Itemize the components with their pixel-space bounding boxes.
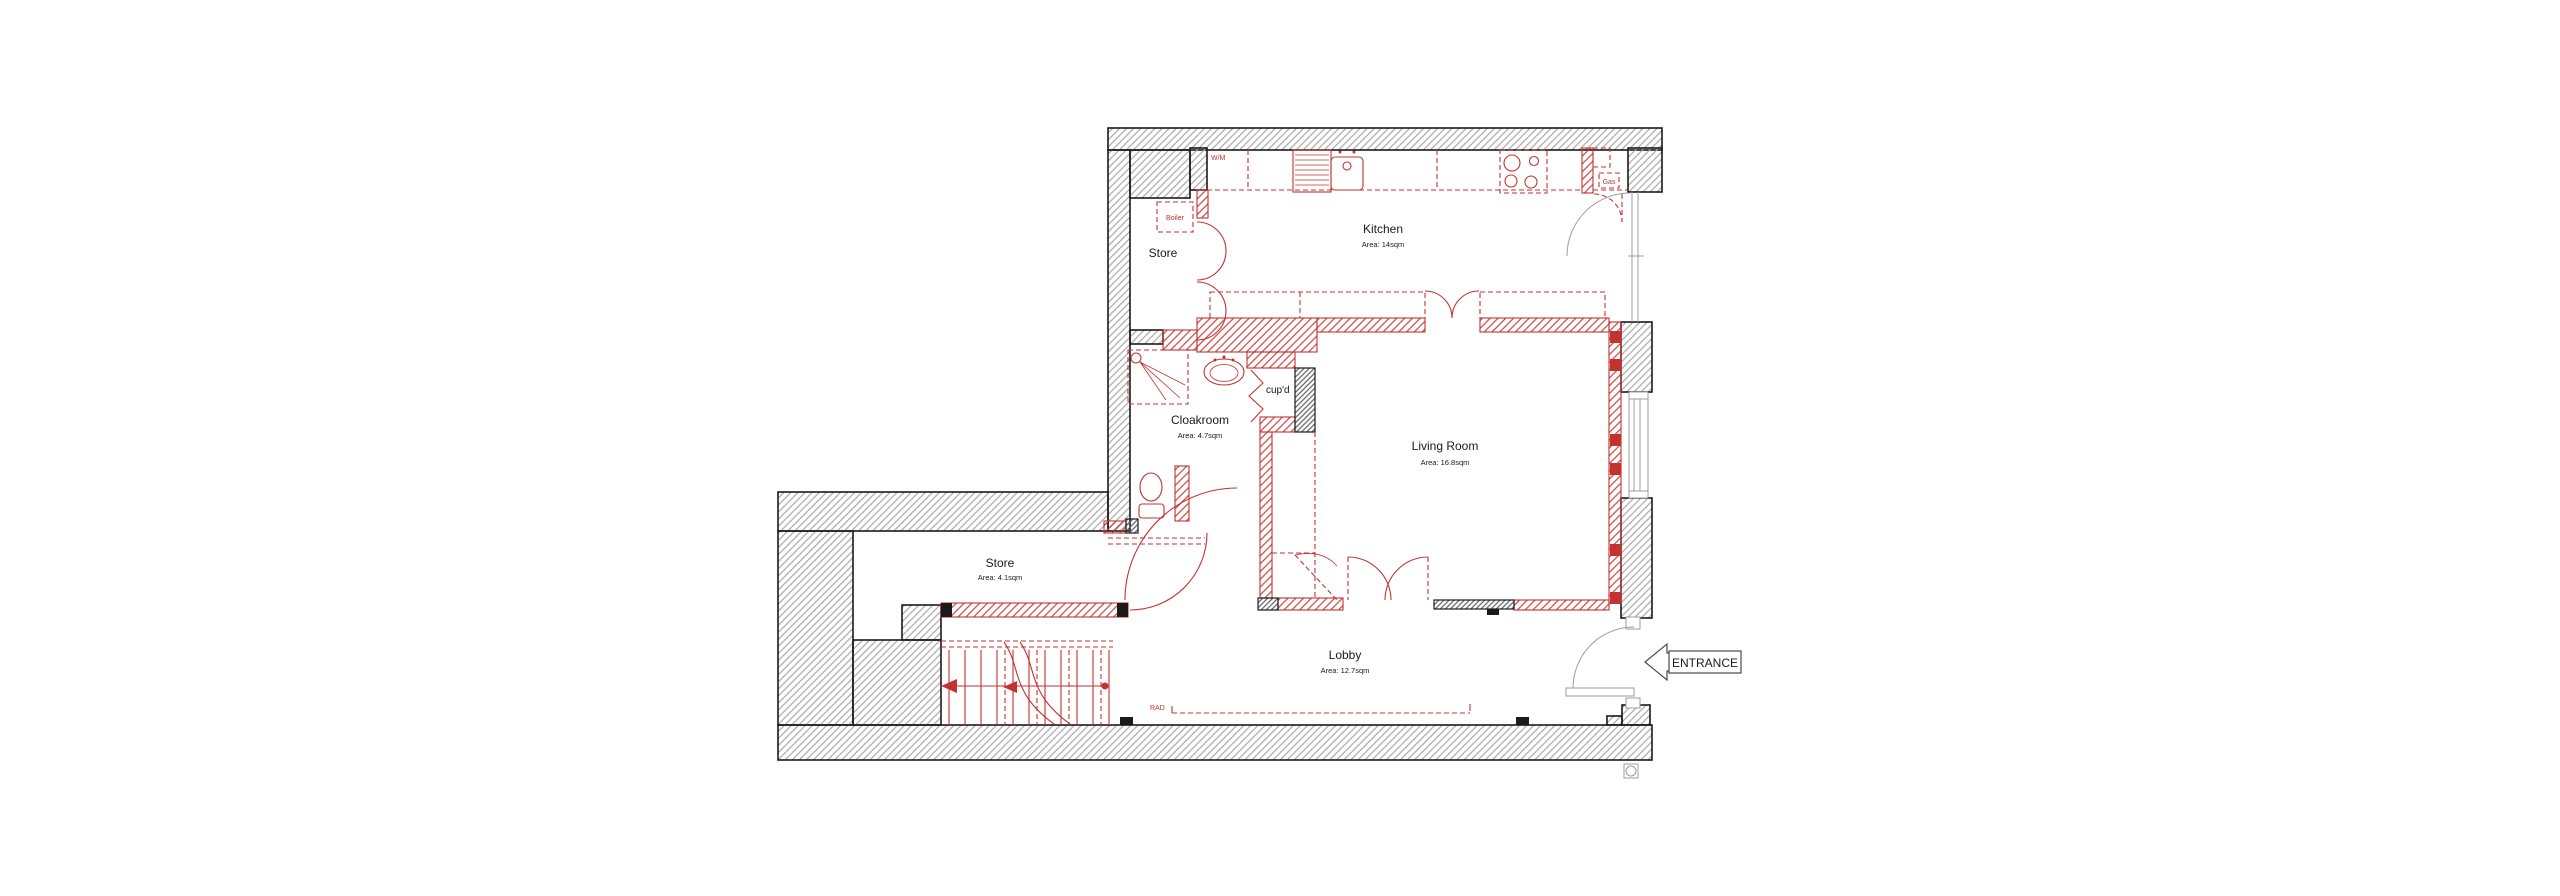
lobby-label: Lobby [1329, 648, 1362, 662]
wall-lobby-north-right [1514, 600, 1609, 610]
floor-plan-page: ENTRANCE Kitchen Area: 14sqm Store Cloak… [0, 0, 2560, 896]
wall-below-store [853, 640, 941, 725]
hob-burner-1 [1504, 155, 1520, 171]
wall-under-cupboard [1260, 417, 1295, 432]
room-labels: Kitchen Area: 14sqm Store Cloakroom Area… [978, 155, 1616, 712]
floor-plan: ENTRANCE Kitchen Area: 14sqm Store Cloak… [0, 0, 2560, 896]
toilet-bowl [1140, 473, 1162, 501]
entrance-label: ENTRANCE [1672, 656, 1738, 670]
wall-store-lower-south [941, 603, 1128, 617]
wall-kitchen-south-left [1317, 318, 1425, 332]
wall-lowerleft-top [778, 492, 1108, 531]
tap-1 [1339, 151, 1342, 154]
shower-tray [1128, 350, 1188, 404]
wall-cloakroom-south [1104, 521, 1126, 533]
wall-entrance-step [1607, 716, 1622, 725]
wall-toilet-stub [1175, 466, 1189, 521]
cloakroom-area-label: Area: 4.7sqm [1178, 431, 1223, 440]
wall-cupboard-top [1247, 352, 1295, 368]
wall-lobby-existing [1434, 600, 1514, 609]
draining-board-ridges [1295, 155, 1329, 185]
store-upper-door-arc-1 [1197, 222, 1226, 280]
washing-machine-label: W/M [1211, 155, 1226, 162]
wall-left-lower [778, 531, 853, 725]
wall-cap-2 [1117, 603, 1128, 617]
lobby-double-door-arc-1 [1348, 557, 1391, 600]
wall-notch-side [902, 605, 941, 640]
cupboard-label: cup'd [1266, 385, 1290, 396]
entrance-door-arc [1573, 627, 1634, 688]
wall-store-door-stub [1197, 190, 1208, 218]
gas-label: Gas [1603, 179, 1616, 186]
stairs-dashed-treads [1005, 650, 1101, 725]
shower-head [1131, 353, 1141, 363]
door-stop-bump-1 [1120, 717, 1133, 725]
kitchen-label: Kitchen [1363, 222, 1403, 236]
wall-kitchen-ne [1628, 148, 1662, 192]
wall-store-stub [1190, 148, 1207, 190]
stairs [941, 641, 1113, 725]
wall-cloakroom-north-left [1163, 330, 1197, 350]
radiator-label: RAD [1150, 705, 1165, 712]
wall-stud-5 [1610, 544, 1621, 556]
worktop-box [1593, 148, 1610, 167]
interior-partition-walls [941, 148, 1621, 617]
lobby-area-label: Area: 12.7sqm [1321, 666, 1370, 675]
entrance-callout: ENTRANCE [1645, 644, 1741, 680]
store-upper-label: Store [1149, 246, 1178, 260]
toilet-cistern [1139, 504, 1164, 518]
kitchen-existing-door-arc [1567, 193, 1630, 256]
entrance-door-jamb-bottom [1626, 698, 1640, 708]
basin-bowl [1210, 365, 1238, 382]
wall-band-small [1130, 330, 1163, 344]
wall-cap-1 [941, 603, 952, 617]
entrance-door-leaf [1566, 688, 1634, 696]
wall-stud-4 [1610, 463, 1621, 475]
wall-above-store [1130, 150, 1190, 198]
kitchen-living-double-door-arc-1 [1425, 291, 1452, 318]
stairs-line-origin [1102, 683, 1109, 690]
doors [1125, 193, 1630, 610]
basin-tap-1 [1214, 359, 1217, 362]
living-window-sill-bottom [1629, 491, 1648, 498]
cupboard-bifold-door [1249, 370, 1263, 422]
basin-tap-2 [1223, 356, 1226, 359]
wall-cloakroom-north-thick [1197, 318, 1317, 352]
tap-2 [1353, 151, 1356, 154]
windows [1566, 192, 1648, 778]
living-room-label: Living Room [1412, 439, 1479, 453]
south-counter-right [1480, 292, 1605, 318]
passage-door-arc [1295, 553, 1337, 566]
wall-stud-6 [1610, 592, 1621, 604]
radiator [1172, 704, 1470, 713]
wall-stud-2 [1610, 359, 1621, 371]
living-room-area-label: Area: 16.8sqm [1421, 458, 1470, 467]
wall-living-west [1260, 432, 1272, 598]
hob-burner-4 [1525, 176, 1537, 188]
shower-spray-lines [1140, 362, 1185, 400]
hob-burner-2 [1530, 157, 1539, 166]
lobby-double-door-arc-2 [1385, 557, 1428, 600]
cloakroom-label: Cloakroom [1171, 413, 1229, 427]
wall-kitchen-pillar [1582, 148, 1593, 193]
wall-stud-1 [1610, 331, 1621, 343]
store-lower-label: Store [986, 556, 1015, 570]
wall-left-upper [1108, 150, 1130, 531]
wall-block-cloakroom-sw [1126, 519, 1138, 533]
exterior-walls [778, 128, 1662, 760]
wall-block-living-west-foot [1258, 598, 1278, 610]
kitchen-living-double-door-arc-2 [1452, 291, 1479, 318]
wall-lobby-north-left [1278, 598, 1343, 610]
wall-pier-2 [1621, 498, 1652, 618]
south-counter-left [1210, 292, 1425, 318]
basin-tap-3 [1232, 359, 1235, 362]
door-stop-bump-2 [1516, 717, 1529, 725]
wall-kitchen-south-right [1480, 318, 1609, 332]
wall-top [1108, 128, 1662, 150]
hob-burner-3 [1505, 175, 1517, 187]
passage-door-leaf [1295, 555, 1337, 600]
wall-bottom [778, 725, 1652, 760]
sink-drain [1343, 162, 1351, 170]
living-window-sill-top [1629, 392, 1648, 399]
store-lower-area-label: Area: 4.1sqm [978, 573, 1023, 582]
wall-lobby-nub [1487, 609, 1499, 615]
wall-pier-1 [1621, 322, 1652, 392]
living-window-frame [1629, 392, 1648, 498]
kitchen-door-arc [1594, 194, 1622, 222]
boiler-label: Boiler [1166, 215, 1185, 222]
kitchen-area-label: Area: 14sqm [1362, 240, 1405, 249]
wall-stud-3 [1610, 434, 1621, 446]
draining-board [1293, 150, 1331, 192]
wall-block-cupboard-east [1295, 368, 1315, 432]
